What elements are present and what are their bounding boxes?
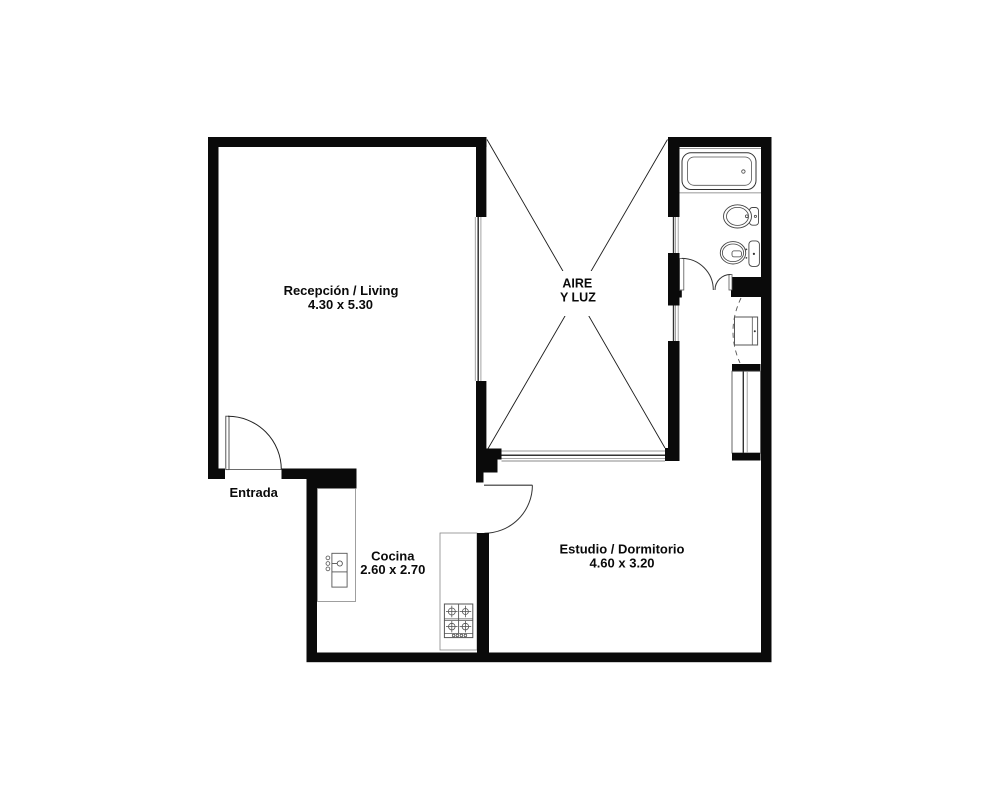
svg-text:Entrada: Entrada: [229, 485, 278, 500]
svg-text:4.30 x 5.30: 4.30 x 5.30: [308, 297, 373, 312]
svg-text:2.60 x 2.70: 2.60 x 2.70: [360, 562, 425, 577]
svg-text:Y LUZ: Y LUZ: [560, 291, 596, 305]
svg-text:AIRE: AIRE: [562, 277, 592, 291]
svg-text:Estudio / Dormitorio: Estudio / Dormitorio: [560, 542, 685, 557]
svg-text:4.60 x 3.20: 4.60 x 3.20: [589, 556, 654, 571]
svg-text:Recepción / Living: Recepción / Living: [284, 283, 399, 298]
